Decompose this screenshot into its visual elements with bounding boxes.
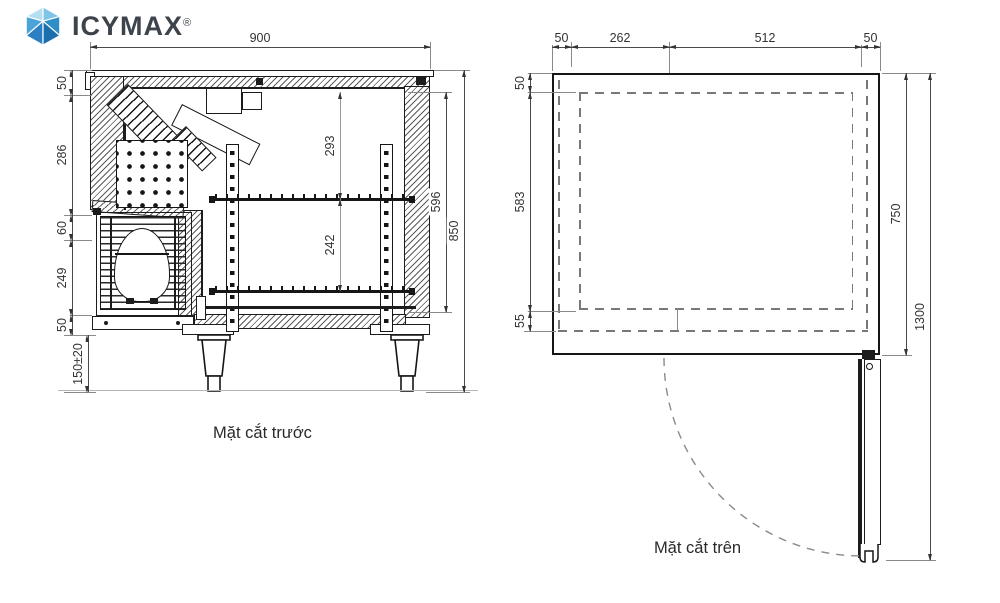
wall-bracket bbox=[93, 208, 101, 215]
control-box bbox=[206, 88, 242, 114]
dim-back-left-edge: 50 bbox=[552, 47, 571, 48]
leg-front-right bbox=[390, 334, 424, 393]
dim-back-inset: 50 bbox=[530, 73, 531, 92]
dim-interior-depth: 583 bbox=[530, 92, 531, 311]
right-wall-insulation bbox=[404, 86, 430, 318]
dim-front-inset: 55 bbox=[530, 311, 531, 331]
dim-bottom-inset: 50 bbox=[72, 315, 73, 335]
gasket-dashed-front bbox=[558, 330, 868, 332]
interior-ceiling-line bbox=[124, 87, 404, 89]
shelf-cap bbox=[209, 196, 215, 203]
dim-upper-section: 286 bbox=[72, 95, 73, 215]
dim-interior-height: 596 bbox=[446, 92, 447, 312]
lamp-box bbox=[242, 92, 262, 110]
corner-hinge-block bbox=[416, 76, 426, 85]
wire-shelf-upper bbox=[212, 198, 412, 201]
gasket-dashed-right bbox=[866, 80, 868, 330]
dim-chamber-width: 512 bbox=[669, 47, 861, 48]
ext-line bbox=[64, 392, 96, 393]
dim-shelf-upper: 293 bbox=[340, 92, 341, 199]
shelf-post-left bbox=[226, 144, 239, 332]
dim-depth-door-open: 1300 bbox=[930, 73, 931, 560]
bottom-rail bbox=[204, 306, 416, 309]
ext-line bbox=[677, 308, 678, 331]
rail-bracket bbox=[196, 296, 206, 320]
shelf-cap bbox=[209, 288, 215, 295]
liner-dashed-right bbox=[852, 92, 854, 309]
shelf-cap bbox=[409, 196, 415, 203]
dim-machine-width: 262 bbox=[571, 47, 669, 48]
compressor-foot-right bbox=[150, 298, 158, 304]
perforated-panel bbox=[116, 140, 188, 208]
door-swing-arc bbox=[640, 350, 890, 570]
dim-back-right-edge: 50 bbox=[861, 47, 880, 48]
dim-top-inset: 50 bbox=[72, 70, 73, 95]
shelf-cap bbox=[409, 288, 415, 295]
shelf-post-right bbox=[380, 144, 393, 332]
wire-shelf-lower bbox=[212, 290, 412, 293]
dim-overall-width: 900 bbox=[90, 47, 430, 48]
leg-front-left bbox=[197, 334, 231, 393]
liner-dashed-left bbox=[579, 92, 581, 309]
compressor-foot-left bbox=[126, 298, 134, 304]
front-view-caption: Mặt cắt trước bbox=[160, 424, 365, 443]
grille-divider-left bbox=[110, 216, 112, 310]
ext-line bbox=[64, 240, 92, 241]
top-screw bbox=[256, 78, 263, 85]
grille-divider-right bbox=[174, 216, 176, 310]
ground-line bbox=[58, 390, 478, 391]
dim-overall-height: 850 bbox=[464, 70, 465, 392]
top-section-view: 50 262 512 50 50 583 55 750 1300 Mặt cắt… bbox=[500, 0, 1000, 603]
dim-compressor-zone: 249 bbox=[72, 240, 73, 315]
base-bolt-left bbox=[104, 321, 108, 325]
liner-dashed-top bbox=[579, 92, 853, 94]
compressor-seam bbox=[115, 253, 169, 255]
cabinet-outline bbox=[552, 73, 880, 355]
dim-leg-height: 150±20 bbox=[88, 335, 89, 392]
dim-mid-gap: 60 bbox=[72, 215, 73, 240]
ext-line bbox=[64, 70, 92, 71]
liner-dashed-bottom bbox=[579, 308, 853, 310]
dim-shelf-lower: 242 bbox=[340, 199, 341, 291]
gasket-dashed-left bbox=[558, 80, 560, 330]
ext-line bbox=[64, 215, 92, 216]
technical-drawing-canvas: ICYMAX® bbox=[0, 0, 1000, 603]
ext-line bbox=[64, 95, 92, 96]
dim-overall-depth: 750 bbox=[906, 73, 907, 355]
front-section-view: 900 50 286 60 249 50 150±20 293 242 596 … bbox=[0, 0, 500, 603]
top-view-caption: Mặt cắt trên bbox=[600, 539, 795, 558]
base-bolt-right bbox=[176, 321, 180, 325]
